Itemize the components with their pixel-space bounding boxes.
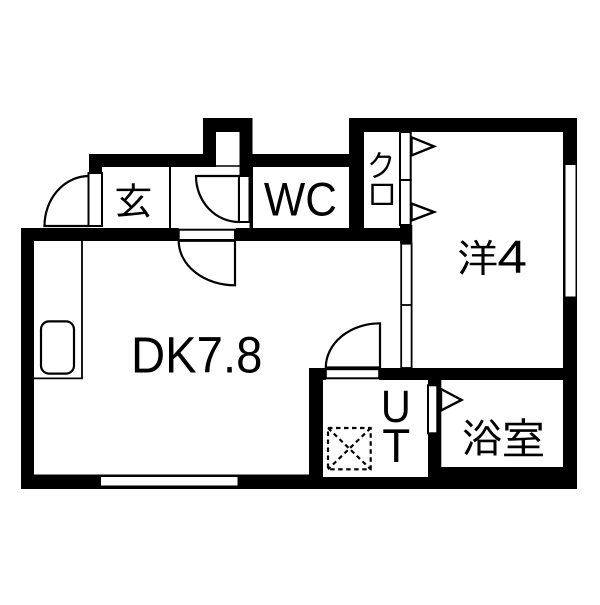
svg-text:WC: WC [264, 173, 337, 226]
svg-text:T: T [382, 420, 410, 473]
svg-text:DK7.8: DK7.8 [131, 326, 262, 383]
svg-text:4: 4 [497, 231, 527, 283]
